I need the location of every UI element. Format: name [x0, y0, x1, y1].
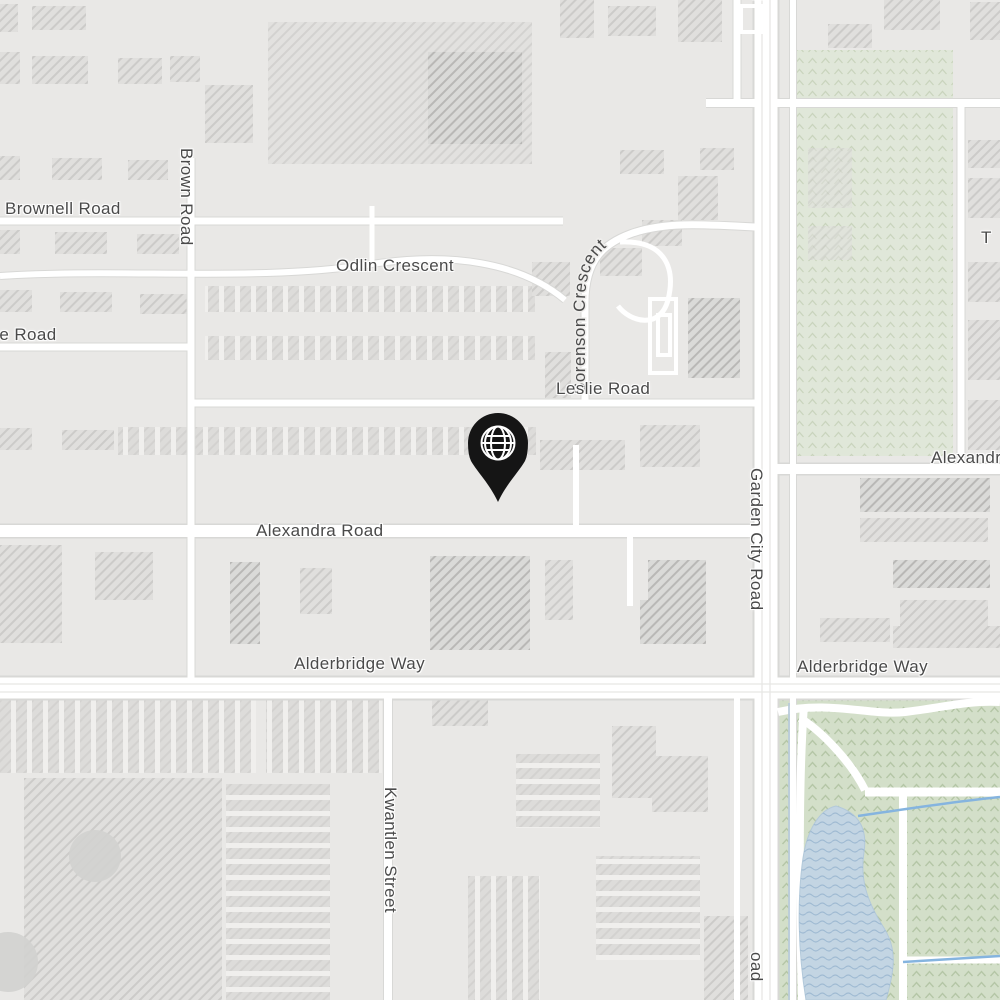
road-label-leslie-road: Leslie Road [556, 379, 650, 399]
road-label-alexandra-road-east-partial: Alexandr [931, 448, 1000, 468]
road-label-alderbridge-way-west: Alderbridge Way [294, 654, 425, 674]
road-label-garden-city-road: Garden City Road [746, 468, 766, 610]
road-label-garden-city-road-top-fragment: d [748, 0, 768, 1]
road-label-leslie-road-west-partial: lie Road [0, 325, 57, 345]
road-label-brown-road: Brown Road [176, 148, 196, 246]
map-canvas[interactable]: Sorenson Crescent Brownell Road Brown Ro… [0, 0, 1000, 1000]
road-label-east-edge-fragment: T [981, 228, 992, 248]
road-label-alexandra-road: Alexandra Road [256, 521, 384, 541]
road-label-brownell-road: Brownell Road [5, 199, 121, 219]
map-graphics: Sorenson Crescent [0, 0, 1000, 1000]
road-label-alderbridge-way-east: Alderbridge Way [797, 657, 928, 677]
road-label-odlin-crescent: Odlin Crescent [336, 256, 454, 276]
road-label-kwantlen-street: Kwantlen Street [380, 787, 400, 913]
road-label-garden-city-road-bottom-fragment: oad [746, 952, 766, 982]
